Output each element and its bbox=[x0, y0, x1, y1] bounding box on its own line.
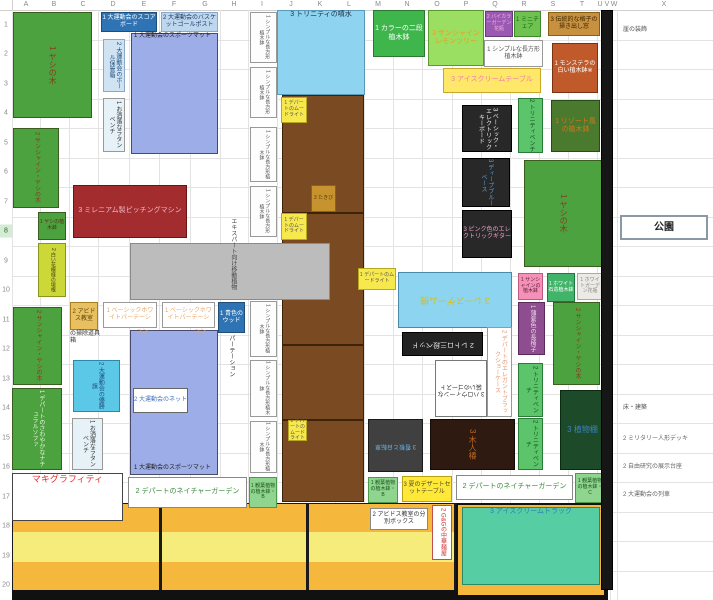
fountain-label: 3 トリニティの噴水 bbox=[290, 11, 351, 19]
two-tier-planter[interactable]: 1 カラーの二段植木鉢 bbox=[373, 10, 425, 57]
fountain[interactable]: 3 トリニティの噴水 bbox=[277, 10, 365, 95]
blue-partition-label: 1 青色のウッド bbox=[219, 311, 244, 325]
white-partition[interactable]: 1 ベーシックホワイトパーテーシ bbox=[103, 302, 157, 328]
rattan-bench-label: 1 お洒落なラタンベンチ bbox=[107, 99, 121, 151]
col-header-W[interactable]: W bbox=[611, 0, 618, 10]
col-header-M[interactable]: M bbox=[375, 0, 381, 10]
annotation-text: 2 ミリタリー人形デッキ bbox=[623, 436, 688, 442]
simple-planter[interactable]: 1 シンプルな長方形植木鉢 bbox=[250, 301, 277, 357]
col-header-V[interactable]: V bbox=[605, 0, 610, 10]
row-header-18[interactable]: 18 bbox=[0, 520, 12, 533]
blue-partition[interactable]: 1 青色のウッド bbox=[218, 302, 245, 333]
mood-light-label: 1 デパートのムードライト bbox=[282, 101, 306, 118]
dirt-path[interactable] bbox=[282, 345, 364, 420]
basketball-goal[interactable]: 2 大運動会のバスケットゴールポスト bbox=[161, 12, 218, 32]
nature-garden-label: 2 デパートのネイチャーガーデン bbox=[136, 488, 240, 496]
palm-tree[interactable]: 2 サンシャイン・ヤシの木 bbox=[13, 128, 59, 208]
simple-planter[interactable]: 1 シンプルな長方形植木鉢 bbox=[250, 127, 277, 182]
row-header-8[interactable]: 8 bbox=[0, 225, 12, 238]
row-header-13[interactable]: 13 bbox=[0, 373, 12, 386]
row-header-11[interactable]: 11 bbox=[0, 314, 12, 327]
white-garden-vase[interactable]: 1 ホワイトガーデン花瓶 bbox=[577, 273, 603, 300]
electric-keyboard-label: 3 ベーシック・エレクトリックキーボード bbox=[477, 106, 498, 151]
foliage-planter-label: 1 観葉植物の植木鉢・B bbox=[250, 484, 276, 501]
race-game[interactable]: 3 レースゲーム機 bbox=[398, 272, 512, 328]
basketball-goal-label: 2 大運動会のバスケットゴールポスト bbox=[162, 15, 217, 29]
foliage-planter[interactable]: 1 観葉植物の植木鉢・B bbox=[368, 477, 398, 503]
col-header-B[interactable]: B bbox=[52, 0, 57, 10]
mood-light[interactable]: 1 デパートのムードライト bbox=[288, 420, 307, 441]
col-header-L[interactable]: L bbox=[347, 0, 351, 10]
pitching-machine[interactable]: 3 ミレニアム製ピッチングマシン bbox=[73, 185, 187, 238]
mood-light[interactable]: 1 デパートのムードライト bbox=[358, 268, 396, 290]
annotation-text: ョン bbox=[136, 329, 148, 335]
garden-vase-label: 2 バイカラーガーデン花瓶 bbox=[486, 15, 512, 32]
monstera-pot[interactable]: 1 モンステラの白い植木鉢※ bbox=[552, 43, 598, 93]
garden-vase[interactable]: 2 バイカラーガーデン花瓶 bbox=[485, 11, 513, 37]
palm-tree[interactable]: 2 サンシャイン・ヤシの木 bbox=[553, 302, 600, 385]
annotation-text: 2 大運動会の列車 bbox=[623, 492, 670, 498]
row-header-9[interactable]: 9 bbox=[0, 255, 12, 268]
palm-pot[interactable]: 1 ヤシの植木鉢 bbox=[38, 212, 66, 240]
mini-chair[interactable]: 1 ミニチェア bbox=[514, 11, 541, 37]
nature-garden[interactable]: 2 デパートのネイチャーガーデン bbox=[128, 477, 247, 508]
black-showcase[interactable]: 2 デパートのエレガントブラックショーケース bbox=[487, 327, 512, 417]
col-header-O[interactable]: O bbox=[434, 0, 439, 10]
two-tier-planter-label: 1 カラーの二段植木鉢 bbox=[374, 25, 424, 41]
trinity-bench-label: 2 トリニティベンチ bbox=[527, 99, 534, 152]
electric-keyboard[interactable]: 3 ベーシック・エレクトリックキーボード bbox=[462, 105, 512, 152]
col-header-X[interactable]: X bbox=[662, 0, 667, 10]
annotation-note: 2 ミリタリー人形デッキ bbox=[623, 436, 688, 443]
white-stone-planter[interactable]: 1 ホワイト石造植木鉢 bbox=[547, 273, 575, 302]
race-game-label: 3 レースゲーム機 bbox=[420, 295, 490, 305]
col-header-D[interactable]: D bbox=[110, 0, 115, 10]
flower-fence[interactable]: 2 白い花模様の垣根 bbox=[38, 243, 66, 297]
col-header-I[interactable]: I bbox=[261, 0, 263, 10]
ground-divider[interactable] bbox=[306, 503, 309, 598]
spreadsheet-map: ABCDEFGHIJKLMNOPQRSTUVWX1234567891011121… bbox=[0, 0, 713, 600]
annotation-note: エキスパート向け移動植物 bbox=[229, 218, 236, 290]
palm-tree-label: 2 サンシャイン・ヤシの木 bbox=[33, 132, 40, 203]
icecream-table-label: 3 アイスクリームテーブル bbox=[451, 76, 533, 84]
nature-garden-label: 2 デパートのネイチャーガーデン bbox=[463, 483, 567, 491]
mood-light-label: 1 デパートのムードライト bbox=[289, 419, 306, 442]
halloween-ghost-label: 3 ハロウィーンな装いのゴースト bbox=[436, 382, 486, 396]
foliage-planter-label: 1 観葉植物の植木鉢・B bbox=[369, 481, 397, 498]
natural-sofa-label: 1 デパートのさわやかなナチュラルソファ bbox=[30, 389, 44, 469]
lattice-window-label: 3 伝統的な格子の掃き出し窓 bbox=[549, 17, 599, 31]
simple-planter-label: 1 シンプルな長方形植木鉢 bbox=[485, 47, 542, 61]
palm-tree-label: 1 ヤシの木 bbox=[559, 194, 568, 233]
white-garden-vase-label: 1 ホワイトガーデン花瓶 bbox=[578, 278, 602, 295]
annotation-note: 床・建築 bbox=[623, 405, 647, 412]
col-header-K[interactable]: K bbox=[318, 0, 323, 10]
sign-bicycle-label: 3 看板と自転車 bbox=[375, 442, 416, 449]
wooden-dummy[interactable]: 3 木人椿 bbox=[430, 419, 515, 470]
sorting-box[interactable]: 2 アビドス教室の分別ボックス bbox=[370, 508, 428, 530]
col-header-F[interactable]: F bbox=[172, 0, 176, 10]
col-header-P[interactable]: P bbox=[464, 0, 469, 10]
sports-mat[interactable] bbox=[131, 33, 218, 154]
maki-graffiti-label: マキグラフィティ bbox=[32, 474, 103, 484]
annotation-text: 1 大運動会のスポーツマット bbox=[134, 33, 211, 39]
simple-planter-label: 1 シンプルな長方形植木鉢 bbox=[258, 13, 270, 62]
col-header-J[interactable]: J bbox=[289, 0, 293, 10]
wooden-dummy-label: 3 木人椿 bbox=[468, 429, 477, 460]
palm-tree-label: 2 サンシャイン・ヤシの木 bbox=[573, 308, 580, 379]
monstera-pot-label: 1 モンステラの白い植木鉢※ bbox=[553, 61, 597, 75]
park-label[interactable]: 公園 bbox=[620, 215, 708, 240]
annotation-note: ョン bbox=[136, 329, 148, 336]
simple-planter-label: 1 シンプルな長方形植木鉢 bbox=[258, 422, 270, 472]
natural-sofa[interactable]: 1 デパートのさわやかなナチュラルソファ bbox=[12, 388, 62, 470]
victory-flag[interactable]: 2 大運動会の優勝旗 bbox=[73, 360, 120, 412]
annotation-note: パーテーション bbox=[227, 335, 234, 377]
noodle-shop[interactable]: 2 G&Gの中華麺屋 bbox=[432, 505, 452, 560]
annotation-text: の掃除道具箱 bbox=[70, 331, 100, 344]
sports-net-label: 2 大運動会のネット bbox=[134, 397, 187, 404]
lattice-window[interactable]: 3 伝統的な格子の掃き出し窓 bbox=[548, 12, 600, 36]
foliage-planter-label: 1 観葉植物の植木鉢・C bbox=[576, 479, 604, 496]
simple-planter[interactable]: 1 シンプルな長方形植木鉢 bbox=[250, 12, 277, 63]
trinity-bench[interactable]: 2 トリニティベンチ bbox=[518, 363, 543, 417]
row-header-10[interactable]: 10 bbox=[0, 284, 12, 297]
simple-planter-label: 1 シンプルな長方形植木鉢 bbox=[258, 68, 270, 117]
ball-storage-box[interactable]: 2 大運動会のボール保管箱 bbox=[103, 39, 125, 92]
purple-bench[interactable]: 1 薄紫色の長椅子 bbox=[518, 302, 545, 355]
annotation-note: 2 自由研究の展示台座 bbox=[623, 464, 682, 471]
annotation-note: 1 大運動会のスポーツマット bbox=[134, 465, 211, 472]
palm-tree[interactable]: 1 ヤシの木 bbox=[524, 160, 603, 267]
row-header-19[interactable]: 19 bbox=[0, 550, 12, 563]
plant-shelf[interactable]: 3 植物棚 bbox=[560, 390, 605, 470]
annotation-text: ョン bbox=[194, 329, 206, 335]
sunshine-planter-label: 1 サンシャインの植木鉢 bbox=[519, 278, 542, 295]
trinity-bench-label: 2 トリニティベンチ bbox=[524, 419, 538, 469]
col-header-A[interactable]: A bbox=[24, 0, 29, 10]
rattan-bench-label: 1 お洒落なラタンベンチ bbox=[81, 419, 95, 469]
ball-storage-box-label: 2 大運動会のボール保管箱 bbox=[107, 40, 121, 91]
annotation-note: 1 大運動会のスポーツマット bbox=[134, 33, 211, 40]
lemon-tree-label: 3 サンシャインレモンツリー bbox=[429, 30, 483, 46]
black-showcase-label: 2 デパートのエレガントブラックショーケース bbox=[493, 328, 507, 416]
sorting-box-label: 2 アビドス教室の分別ボックス bbox=[371, 512, 427, 526]
maki-graffiti[interactable]: マキグラフィティ bbox=[12, 473, 123, 521]
halloween-ghost[interactable]: 3 ハロウィーンな装いのゴースト bbox=[435, 360, 487, 417]
pink-guitar[interactable]: 3 ピンク色のエレクトリックギター bbox=[462, 210, 512, 258]
resort-planter[interactable]: 1 リゾート風の植木鉢 bbox=[551, 100, 600, 152]
retro-bunk-bed[interactable]: 2 レトロ三段ベッド bbox=[402, 332, 483, 356]
annotation-text: 床・建築 bbox=[623, 405, 647, 411]
col-header-N[interactable]: N bbox=[404, 0, 409, 10]
mood-light[interactable]: 1 デパートのムードライト bbox=[281, 97, 307, 123]
row-header-3[interactable]: 3 bbox=[0, 78, 12, 91]
annotation-note: 崖の装飾 bbox=[623, 27, 647, 34]
retro-bunk-bed-label: 2 レトロ三段ベッド bbox=[412, 340, 474, 348]
pink-guitar-label: 3 ピンク色のエレクトリックギター bbox=[463, 227, 511, 241]
row-header-12[interactable]: 12 bbox=[0, 343, 12, 356]
trinity-bench[interactable]: 2 トリニティベンチ bbox=[518, 418, 543, 470]
row-header-15[interactable]: 15 bbox=[0, 432, 12, 445]
white-partition-label: 1 ベーシックホワイトパーテーシ bbox=[104, 308, 156, 322]
row-header-17[interactable]: 17 bbox=[0, 491, 12, 504]
resort-planter-label: 1 リゾート風の植木鉢 bbox=[552, 118, 599, 134]
simple-planter-label: 1 シンプルな長方形植木鉢 bbox=[258, 187, 270, 236]
palm-tree-label: 2 サンシャイン・ヤシの木 bbox=[34, 310, 41, 381]
simple-planter[interactable]: 1 シンプルな長方形植木鉢 bbox=[250, 360, 277, 417]
icecream-truck[interactable]: 3 アイスクリームトラック bbox=[462, 507, 600, 585]
annotation-text: 2 自由研究の展示台座 bbox=[623, 464, 682, 470]
row-header-4[interactable]: 4 bbox=[0, 107, 12, 120]
white-partition-label: 1 ベーシックホワイトパーテーシ bbox=[163, 308, 214, 322]
annotation-text: 1 大運動会のスポーツマット bbox=[134, 465, 211, 471]
icecream-truck-label: 3 アイスクリームトラック bbox=[490, 508, 572, 516]
simple-planter-label: 1 シンプルな長方形植木鉢 bbox=[258, 361, 270, 416]
annotation-note: 2 大運動会の列車 bbox=[623, 492, 670, 499]
bonfire[interactable]: 3 たきび bbox=[311, 185, 336, 212]
col-header-T[interactable]: T bbox=[580, 0, 584, 10]
nature-garden[interactable]: 2 デパートのネイチャーガーデン bbox=[456, 475, 573, 500]
row-header-2[interactable]: 2 bbox=[0, 48, 12, 61]
abydos-cleaning-box[interactable]: 2 アビドス教室 bbox=[70, 302, 98, 330]
col-header-S[interactable]: S bbox=[551, 0, 556, 10]
mood-light-label: 1 デパートのムードライト bbox=[359, 273, 395, 285]
annotation-note: の掃除道具箱 bbox=[70, 331, 100, 345]
simple-planter[interactable]: 1 シンプルな長方形植木鉢 bbox=[484, 40, 543, 67]
row-header-16[interactable]: 16 bbox=[0, 461, 12, 474]
scoreboard-label: 1 大運動会のスコアボード bbox=[102, 15, 156, 29]
pitching-machine-label: 3 ミレニアム製ピッチングマシン bbox=[78, 207, 181, 215]
deep-blue-bass[interactable]: 3 ディープブルーベース bbox=[462, 158, 510, 207]
white-stone-planter-label: 1 ホワイト石造植木鉢 bbox=[548, 282, 574, 294]
cliff[interactable] bbox=[601, 10, 613, 590]
scoreboard[interactable]: 1 大運動会のスコアボード bbox=[101, 12, 157, 32]
row-header-20[interactable]: 20 bbox=[0, 579, 12, 592]
row-header-1[interactable]: 1 bbox=[0, 19, 12, 32]
col-header-C[interactable]: C bbox=[80, 0, 85, 10]
row-header-14[interactable]: 14 bbox=[0, 402, 12, 415]
sports-net[interactable]: 2 大運動会のネット bbox=[133, 388, 188, 413]
park-label-label: 公園 bbox=[654, 222, 674, 234]
palm-tree[interactable]: 1 ヤシの木 bbox=[13, 12, 92, 118]
col-header-U[interactable]: U bbox=[597, 0, 602, 10]
ground-divider[interactable] bbox=[159, 503, 162, 598]
bonfire-label: 3 たきび bbox=[314, 196, 333, 202]
plant-shelf-label: 3 植物棚 bbox=[567, 425, 598, 434]
white-partition[interactable]: 1 ベーシックホワイトパーテーシ bbox=[162, 302, 215, 328]
victory-flag-label: 2 大運動会の優勝旗 bbox=[90, 361, 104, 411]
palm-tree-label: 1 ヤシの木 bbox=[48, 46, 57, 85]
palm-tree[interactable]: 2 サンシャイン・ヤシの木 bbox=[13, 307, 62, 385]
dessert-table-label: 3 夏のデザートセットテーブル bbox=[403, 482, 451, 496]
simple-planter[interactable]: 1 シンプルな長方形植木鉢 bbox=[250, 421, 277, 473]
row-header-5[interactable]: 5 bbox=[0, 137, 12, 150]
foliage-planter[interactable]: 1 観葉植物の植木鉢・B bbox=[249, 477, 277, 508]
col-header-R[interactable]: R bbox=[521, 0, 526, 10]
palm-pot-label: 1 ヤシの植木鉢 bbox=[39, 220, 65, 232]
annotation-text: パーテーション bbox=[227, 335, 234, 377]
rattan-bench[interactable]: 1 お洒落なラタンベンチ bbox=[72, 418, 103, 470]
mood-light-label: 1 デパートのムードライト bbox=[282, 218, 306, 235]
trinity-bench-label: 2 トリニティベンチ bbox=[524, 364, 538, 416]
row-header-7[interactable]: 7 bbox=[0, 196, 12, 209]
purple-bench-label: 1 薄紫色の長椅子 bbox=[528, 305, 535, 352]
mood-light[interactable]: 1 デパートのムードライト bbox=[281, 213, 307, 240]
dessert-table[interactable]: 3 夏のデザートセットテーブル bbox=[402, 476, 452, 502]
abydos-cleaning-box-label: 2 アビドス教室 bbox=[71, 309, 97, 323]
simple-planter-label: 1 シンプルな長方形植木鉢 bbox=[258, 302, 270, 356]
lemon-tree[interactable]: 3 サンシャインレモンツリー bbox=[428, 10, 484, 66]
icecream-table[interactable]: 3 アイスクリームテーブル bbox=[443, 68, 541, 93]
flower-fence-label: 2 白い花模様の垣根 bbox=[49, 248, 55, 292]
sunshine-planter[interactable]: 1 サンシャインの植木鉢 bbox=[518, 273, 543, 300]
trinity-bench[interactable]: 2 トリニティベンチ bbox=[518, 98, 543, 153]
col-header-G[interactable]: G bbox=[202, 0, 207, 10]
mini-chair-label: 1 ミニチェア bbox=[515, 17, 540, 31]
noodle-shop-label: 2 G&Gの中華麺屋 bbox=[439, 508, 446, 556]
col-header-H[interactable]: H bbox=[231, 0, 236, 10]
annotation-text: エキスパート向け移動植物 bbox=[229, 218, 236, 290]
simple-planter-label: 1 シンプルな長方形植木鉢 bbox=[258, 128, 270, 181]
annotation-note: ョン bbox=[194, 329, 206, 336]
col-header-Q[interactable]: Q bbox=[492, 0, 497, 10]
col-header-E[interactable]: E bbox=[142, 0, 147, 10]
simple-planter[interactable]: 1 シンプルな長方形植木鉢 bbox=[250, 67, 277, 118]
deep-blue-bass-label: 3 ディープブルーベース bbox=[479, 159, 493, 206]
row-header-6[interactable]: 6 bbox=[0, 166, 12, 179]
sign-bicycle[interactable]: 3 看板と自転車 bbox=[368, 419, 423, 472]
rattan-bench[interactable]: 1 お洒落なラタンベンチ bbox=[103, 98, 125, 152]
simple-planter[interactable]: 1 シンプルな長方形植木鉢 bbox=[250, 186, 277, 237]
annotation-text: 崖の装飾 bbox=[623, 27, 647, 33]
